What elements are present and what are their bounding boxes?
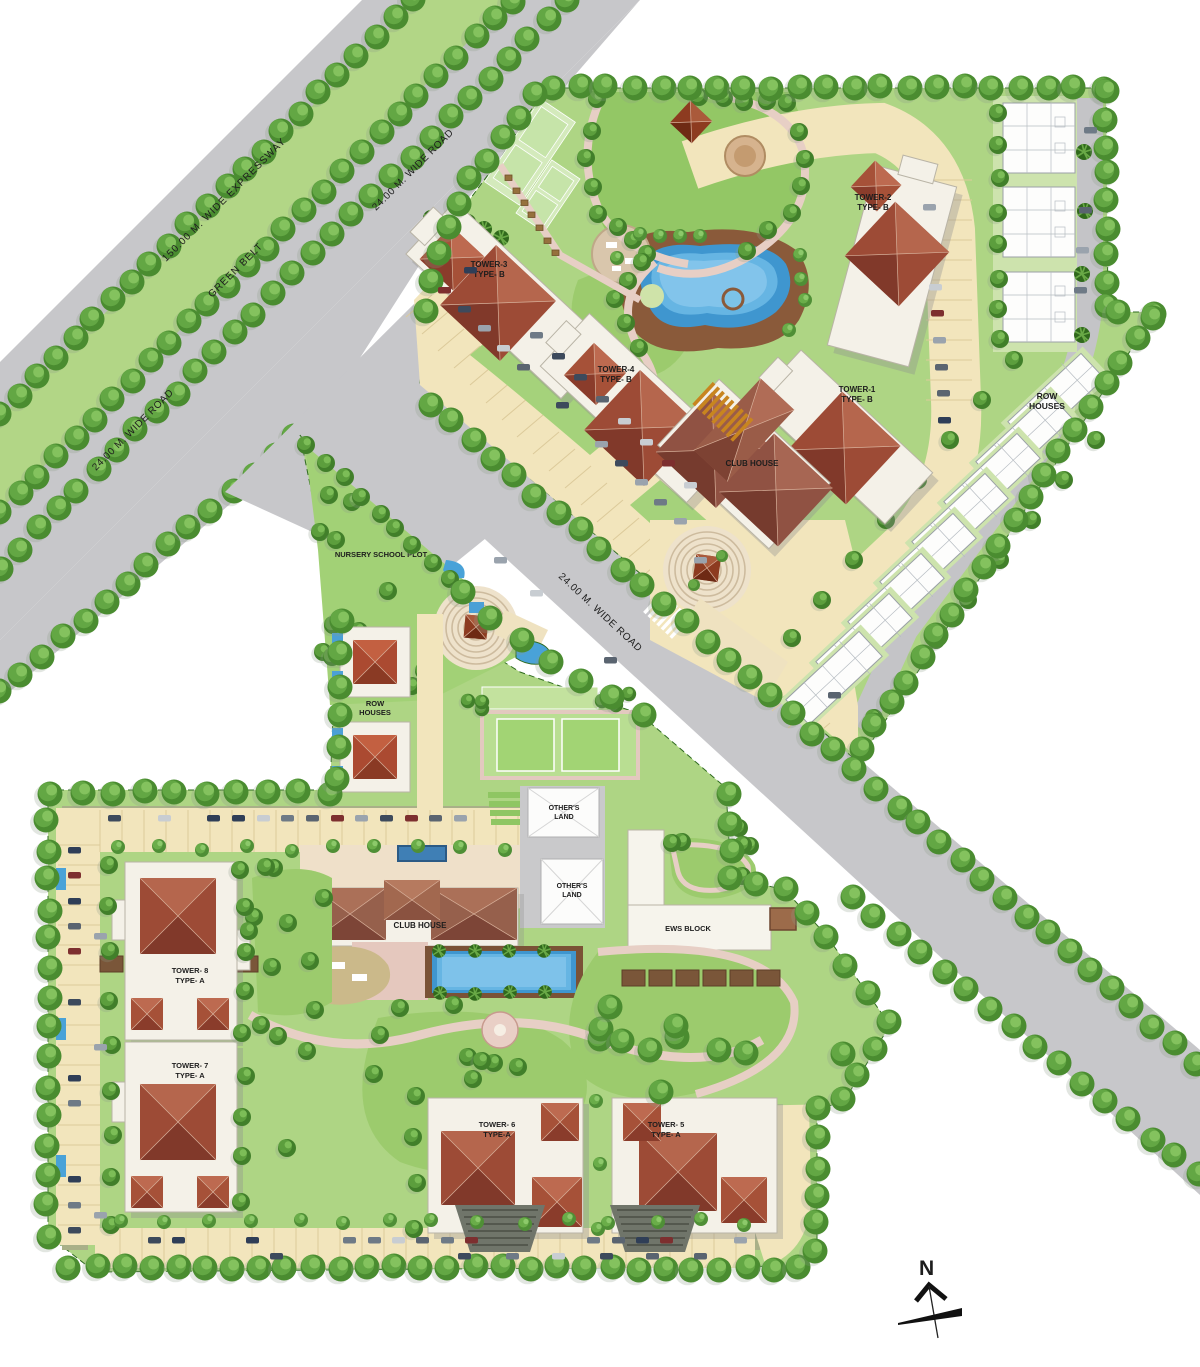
svg-text:TOWER-1: TOWER-1 [839, 385, 876, 394]
svg-text:TYPE- B: TYPE- B [857, 203, 889, 212]
svg-text:CLUB HOUSE: CLUB HOUSE [726, 459, 780, 468]
svg-text:OTHER'S: OTHER'S [557, 883, 588, 890]
svg-text:LAND: LAND [554, 814, 573, 821]
svg-text:N: N [919, 1257, 934, 1280]
svg-text:EWS BLOCK: EWS BLOCK [665, 924, 711, 933]
svg-text:TYPE- B: TYPE- B [600, 375, 632, 384]
svg-text:TOWER- 7: TOWER- 7 [172, 1061, 209, 1070]
svg-text:ROW: ROW [1037, 391, 1059, 401]
svg-text:TOWER- 6: TOWER- 6 [479, 1120, 516, 1129]
svg-text:ROW: ROW [366, 699, 385, 708]
svg-text:HOUSES: HOUSES [1029, 401, 1065, 411]
svg-text:TOWER-2: TOWER-2 [855, 193, 892, 202]
svg-text:OTHER'S: OTHER'S [549, 805, 580, 812]
svg-text:TOWER- 8: TOWER- 8 [172, 966, 209, 975]
svg-text:TYPE- A: TYPE- A [175, 1071, 205, 1080]
svg-text:TYPE- B: TYPE- B [473, 270, 505, 279]
svg-text:HOUSES: HOUSES [359, 708, 391, 717]
svg-text:TYPE- A: TYPE- A [175, 976, 205, 985]
svg-text:TYPE-A: TYPE-A [483, 1130, 511, 1139]
svg-text:TYPE- B: TYPE- B [841, 395, 873, 404]
svg-text:CLUB HOUSE: CLUB HOUSE [394, 921, 448, 930]
svg-text:LAND: LAND [562, 892, 581, 899]
svg-text:TOWER- 5: TOWER- 5 [648, 1120, 685, 1129]
svg-text:TOWER-4: TOWER-4 [598, 365, 635, 374]
svg-text:TYPE- A: TYPE- A [651, 1130, 681, 1139]
